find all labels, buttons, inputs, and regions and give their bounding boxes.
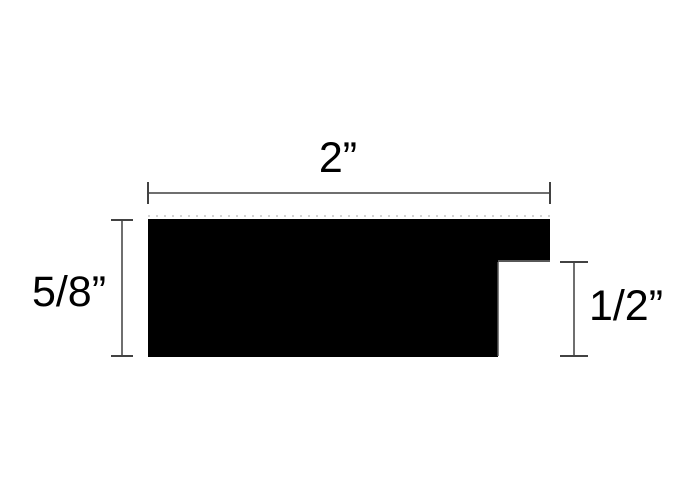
rabbet-dimension-cap-bottom — [560, 355, 588, 357]
width-dimension-line — [148, 192, 550, 194]
height-dimension-line — [121, 220, 123, 356]
diagram-canvas: 2” 5/8” 1/2” — [0, 0, 700, 500]
rabbet-dimension-label: 1/2” — [556, 285, 696, 328]
height-dimension-cap-top — [111, 219, 133, 221]
rabbet-inner-edge — [497, 262, 499, 356]
width-dimension-cap-left — [147, 182, 149, 204]
width-dimension-label: 2” — [268, 137, 408, 180]
height-dimension-cap-bottom — [111, 355, 133, 357]
width-dimension-cap-right — [549, 182, 551, 204]
rabbet-dimension-line — [573, 262, 575, 356]
profile-top-dotted-line — [148, 215, 550, 217]
profile-body — [148, 219, 498, 357]
rabbet-dimension-cap-top — [560, 261, 588, 263]
height-dimension-label: 5/8” — [0, 271, 138, 314]
rabbet-step-edge — [498, 260, 550, 262]
